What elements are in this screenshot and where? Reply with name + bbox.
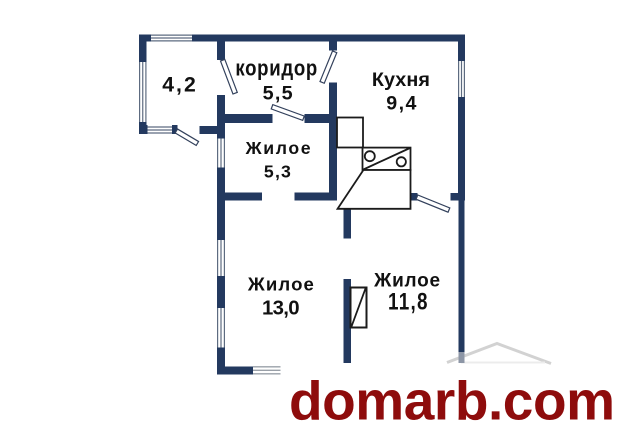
svg-text:Жилое: Жилое <box>247 273 314 294</box>
svg-text:11,8: 11,8 <box>388 287 428 315</box>
svg-text:коридор: коридор <box>235 57 317 81</box>
svg-text:5,5: 5,5 <box>263 82 293 104</box>
svg-text:domarb.com: domarb.com <box>289 370 615 432</box>
svg-text:9,4: 9,4 <box>386 93 416 115</box>
svg-text:5,3: 5,3 <box>264 161 291 181</box>
svg-text:4,2: 4,2 <box>162 73 196 96</box>
svg-text:Кухня: Кухня <box>372 69 430 91</box>
svg-text:13,0: 13,0 <box>262 298 300 320</box>
svg-text:Жилое: Жилое <box>245 138 311 158</box>
